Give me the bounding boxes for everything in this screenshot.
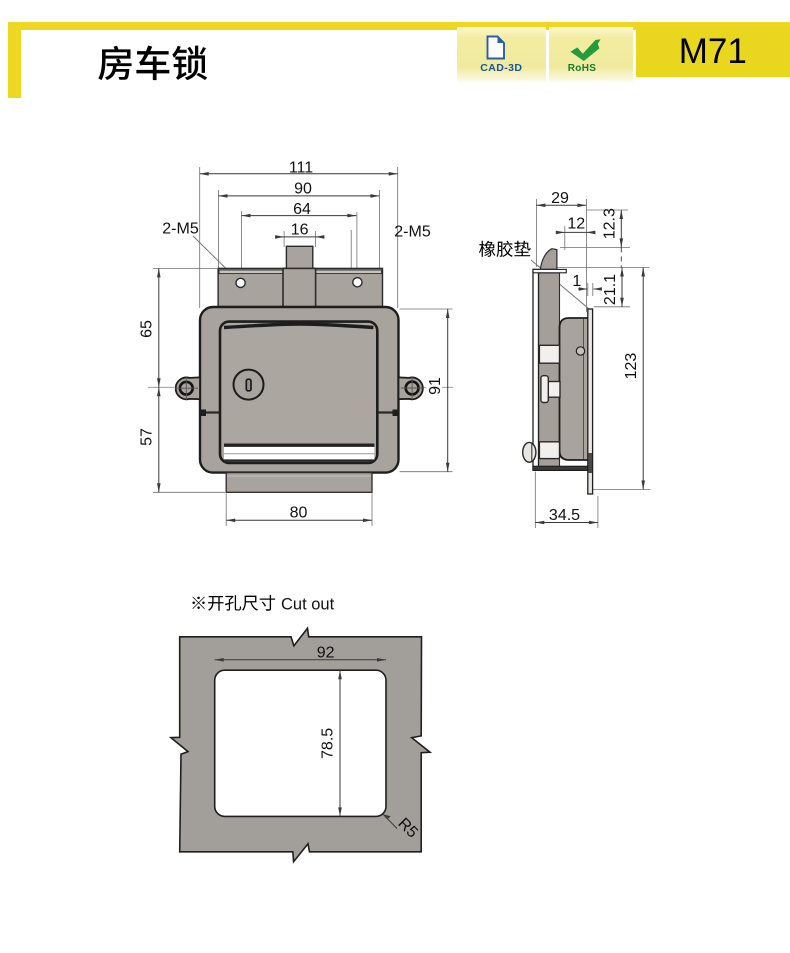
svg-text:29: 29 bbox=[551, 190, 569, 207]
svg-text:Cut out: Cut out bbox=[281, 596, 335, 614]
svg-text:123: 123 bbox=[623, 353, 640, 380]
svg-text:16: 16 bbox=[291, 221, 309, 238]
svg-text:91: 91 bbox=[427, 377, 444, 395]
svg-text:34.5: 34.5 bbox=[549, 507, 580, 524]
svg-text:12: 12 bbox=[567, 216, 585, 233]
svg-text:64: 64 bbox=[293, 201, 311, 218]
svg-text:90: 90 bbox=[294, 181, 312, 198]
svg-text:1: 1 bbox=[572, 273, 581, 290]
svg-text:2-M5: 2-M5 bbox=[394, 224, 431, 241]
svg-text:2-M5: 2-M5 bbox=[162, 221, 199, 238]
svg-text:78.5: 78.5 bbox=[320, 728, 337, 759]
svg-text:21.1: 21.1 bbox=[602, 274, 619, 305]
svg-text:65: 65 bbox=[139, 320, 156, 338]
svg-text:57: 57 bbox=[139, 428, 156, 446]
svg-text:92: 92 bbox=[317, 644, 335, 661]
svg-text:12.3: 12.3 bbox=[602, 208, 619, 239]
svg-text:111: 111 bbox=[289, 159, 313, 176]
svg-text:80: 80 bbox=[290, 505, 308, 522]
